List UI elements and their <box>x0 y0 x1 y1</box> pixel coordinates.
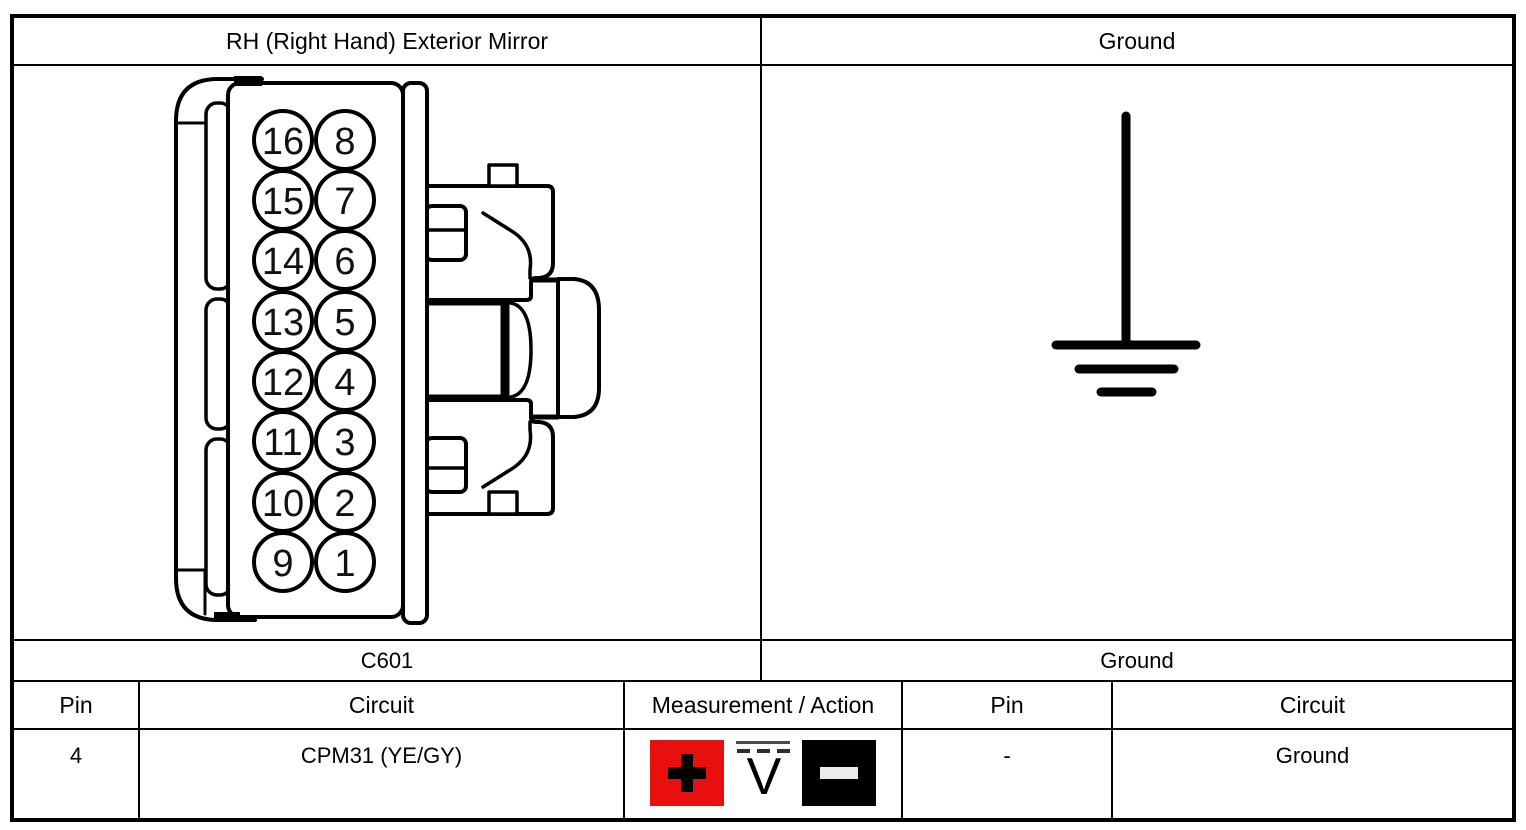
table-row: 4 CPM31 (YE/GY) V - Ground <box>14 730 1512 818</box>
pin-9: 9 <box>272 543 293 585</box>
measurement-header-cell: Measurement / Action <box>625 682 903 730</box>
right-section-title: Ground <box>762 18 1512 66</box>
pin-1: 1 <box>334 543 355 585</box>
pin-2: 2 <box>334 483 355 525</box>
ground-circuit-header-cell: Circuit <box>1113 682 1512 730</box>
connector-diagram-cell: 16 15 14 13 12 11 10 9 8 7 6 5 4 3 <box>14 66 762 641</box>
diagram-table: RH (Right Hand) Exterior Mirror Ground <box>10 14 1516 822</box>
connector-housing <box>176 76 599 623</box>
pin-16: 16 <box>262 121 304 163</box>
ground-circuit-value-cell: Ground <box>1113 730 1512 818</box>
left-section-title: RH (Right Hand) Exterior Mirror <box>14 18 762 66</box>
negative-probe-box <box>802 740 876 806</box>
pin-5: 5 <box>334 302 355 344</box>
ground-symbol <box>762 66 1512 639</box>
ground-diagram-cell <box>762 66 1512 641</box>
pin-value-cell: 4 <box>14 730 140 818</box>
pin-7: 7 <box>334 181 355 223</box>
pin-10: 10 <box>262 483 304 525</box>
ground-pin-value-cell: - <box>903 730 1113 818</box>
diagram-row: 16 15 14 13 12 11 10 9 8 7 6 5 4 3 <box>14 66 1512 641</box>
pin-12: 12 <box>262 362 304 404</box>
dc-voltmeter-icon: V <box>734 740 792 806</box>
pin-header-cell: Pin <box>14 682 140 730</box>
pin-13: 13 <box>262 302 304 344</box>
pin-4: 4 <box>334 362 355 404</box>
pin-6: 6 <box>334 241 355 283</box>
positive-probe-box <box>650 740 724 806</box>
pin-14: 14 <box>262 241 304 283</box>
pin-8: 8 <box>334 121 355 163</box>
plus-icon <box>668 754 706 792</box>
pin-15: 15 <box>262 181 304 223</box>
pinpoint-test-sheet: RH (Right Hand) Exterior Mirror Ground <box>0 0 1526 830</box>
ground-caption: Ground <box>762 641 1512 682</box>
circuit-header-cell: Circuit <box>140 682 625 730</box>
pin-11: 11 <box>263 422 302 464</box>
circuit-value-cell: CPM31 (YE/GY) <box>140 730 625 818</box>
measurement-value-cell: V <box>625 730 903 818</box>
solid-line <box>736 741 790 744</box>
voltmeter-label: V <box>747 753 780 801</box>
connector-diagram: 16 15 14 13 12 11 10 9 8 7 6 5 4 3 <box>14 66 760 639</box>
minus-icon <box>820 767 858 779</box>
pin-3: 3 <box>334 422 355 464</box>
table-header-row: Pin Circuit Measurement / Action Pin Cir… <box>14 682 1512 730</box>
caption-row: C601 Ground <box>14 641 1512 682</box>
connector-caption: C601 <box>14 641 762 682</box>
ground-pin-header-cell: Pin <box>903 682 1113 730</box>
title-row: RH (Right Hand) Exterior Mirror Ground <box>14 18 1512 66</box>
